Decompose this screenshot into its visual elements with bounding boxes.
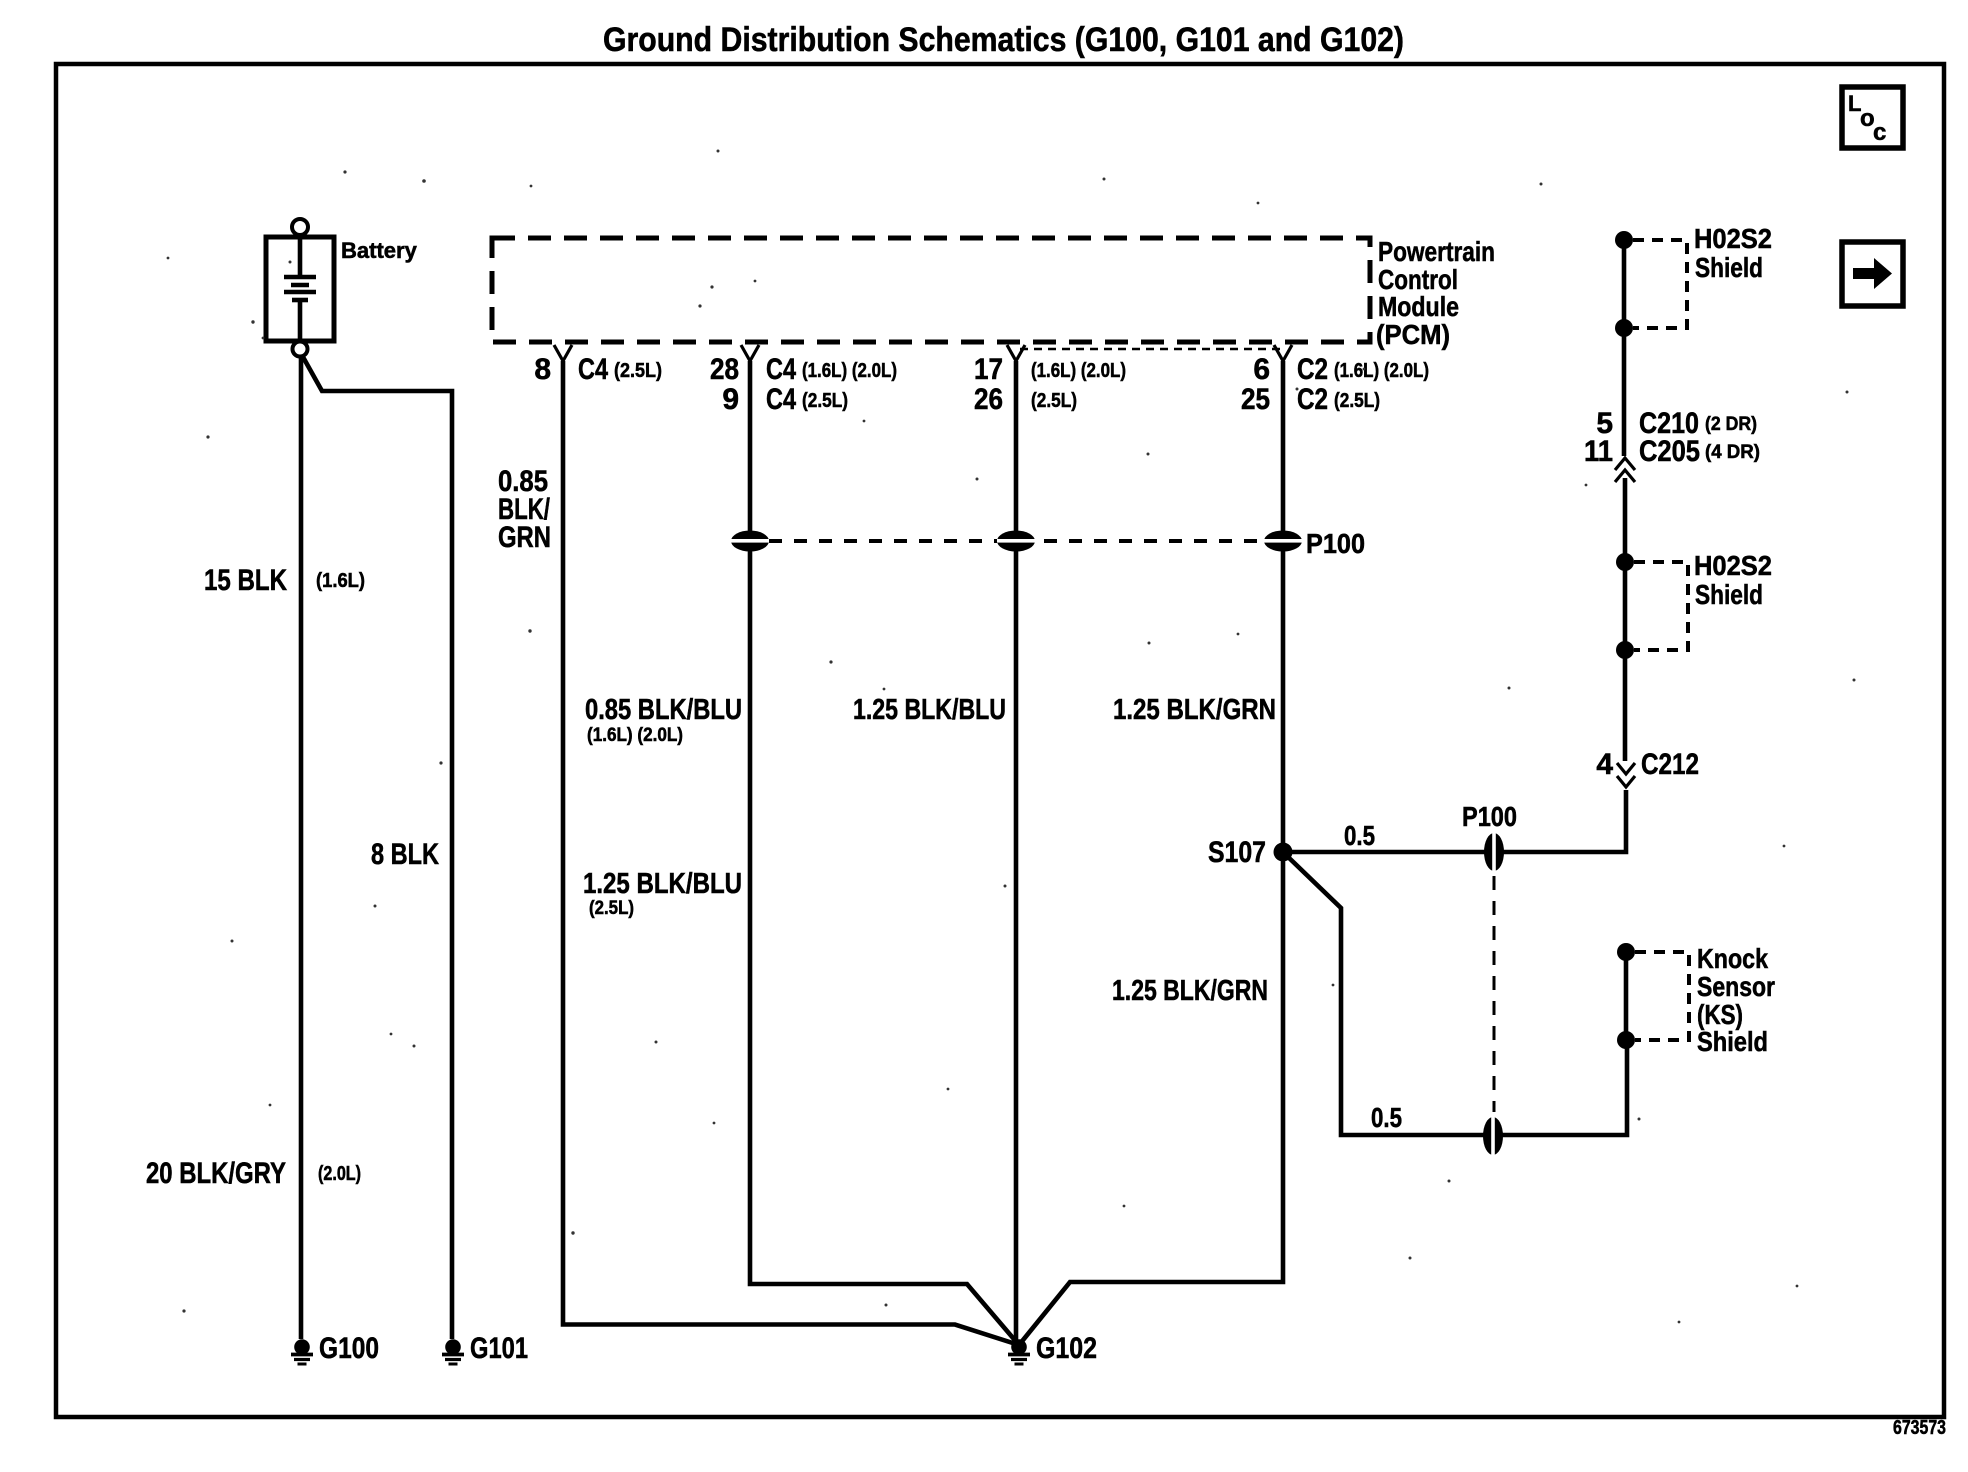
svg-text:(1.6L) (2.0L): (1.6L) (2.0L)	[1031, 360, 1126, 382]
svg-text:17: 17	[974, 353, 1003, 386]
svg-text:0.85 BLK/BLU: 0.85 BLK/BLU	[585, 694, 742, 726]
svg-text:(2 DR): (2 DR)	[1705, 414, 1757, 435]
svg-text:(4 DR): (4 DR)	[1705, 442, 1760, 463]
svg-text:(2.0L): (2.0L)	[318, 1163, 361, 1185]
svg-text:Ground Distribution Schematics: Ground Distribution Schematics (G100, G1…	[603, 21, 1404, 59]
svg-text:8 BLK: 8 BLK	[371, 838, 439, 871]
svg-text:1.25 BLK/GRN: 1.25 BLK/GRN	[1113, 694, 1276, 726]
svg-text:G102: G102	[1036, 1332, 1097, 1365]
svg-text:C205: C205	[1639, 435, 1700, 468]
svg-text:(2.5L): (2.5L)	[1334, 390, 1380, 412]
svg-text:4: 4	[1596, 748, 1613, 781]
svg-text:H02S2: H02S2	[1694, 223, 1772, 254]
svg-text:11: 11	[1584, 435, 1613, 468]
svg-text:(2.5L): (2.5L)	[802, 390, 848, 412]
svg-text:673573: 673573	[1893, 1417, 1946, 1439]
svg-text:6: 6	[1253, 353, 1270, 386]
svg-text:S107: S107	[1208, 836, 1266, 869]
svg-text:(2.5L): (2.5L)	[1031, 390, 1077, 412]
svg-text:GRN: GRN	[498, 521, 551, 554]
svg-text:26: 26	[974, 383, 1003, 416]
svg-text:(2.5L): (2.5L)	[589, 898, 634, 919]
svg-text:c: c	[1873, 119, 1886, 146]
svg-text:G100: G100	[319, 1332, 379, 1365]
svg-text:(1.6L) (2.0L): (1.6L) (2.0L)	[1334, 360, 1429, 382]
svg-text:Knock: Knock	[1697, 943, 1768, 974]
svg-text:Module: Module	[1378, 291, 1459, 322]
svg-text:C4: C4	[578, 353, 608, 386]
svg-text:(1.6L) (2.0L): (1.6L) (2.0L)	[802, 360, 897, 382]
svg-text:H02S2: H02S2	[1694, 550, 1772, 581]
svg-text:C212: C212	[1641, 748, 1699, 781]
svg-text:(2.5L): (2.5L)	[614, 360, 662, 382]
svg-text:P100: P100	[1306, 528, 1365, 559]
svg-text:G101: G101	[470, 1332, 528, 1365]
svg-text:C2: C2	[1297, 383, 1328, 416]
svg-text:0.5: 0.5	[1344, 820, 1375, 851]
svg-text:Battery: Battery	[341, 238, 418, 263]
svg-text:9: 9	[722, 383, 739, 416]
svg-text:8: 8	[534, 353, 551, 386]
svg-text:Powertrain: Powertrain	[1378, 236, 1495, 267]
svg-text:1.25 BLK/BLU: 1.25 BLK/BLU	[583, 868, 742, 900]
svg-text:Shield: Shield	[1695, 252, 1763, 283]
svg-text:P100: P100	[1462, 801, 1517, 832]
svg-text:C4: C4	[766, 383, 796, 416]
svg-text:(1.6L) (2.0L): (1.6L) (2.0L)	[587, 725, 683, 746]
svg-text:20 BLK/GRY: 20 BLK/GRY	[146, 1157, 286, 1190]
svg-text:1.25 BLK/BLU: 1.25 BLK/BLU	[853, 694, 1006, 726]
svg-text:(PCM): (PCM)	[1376, 319, 1450, 350]
svg-text:C4: C4	[766, 353, 796, 386]
svg-text:(1.6L): (1.6L)	[316, 570, 365, 592]
svg-text:Shield: Shield	[1695, 579, 1763, 610]
svg-text:25: 25	[1241, 383, 1270, 416]
svg-text:15 BLK: 15 BLK	[204, 564, 287, 597]
svg-text:1.25 BLK/GRN: 1.25 BLK/GRN	[1112, 975, 1268, 1007]
svg-text:Sensor: Sensor	[1697, 971, 1775, 1002]
svg-text:28: 28	[710, 353, 739, 386]
svg-text:C2: C2	[1297, 353, 1328, 386]
svg-text:Shield: Shield	[1697, 1026, 1768, 1057]
svg-text:0.5: 0.5	[1371, 1102, 1402, 1133]
